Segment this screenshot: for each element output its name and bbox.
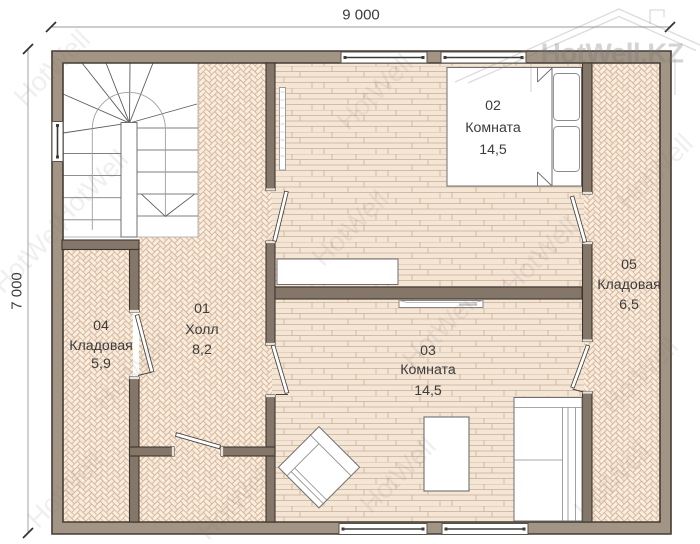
svg-text:Комната: Комната [465, 120, 521, 136]
svg-text:05: 05 [621, 257, 637, 273]
svg-text:Кладовая: Кладовая [597, 277, 661, 293]
svg-text:Кладовая: Кладовая [69, 338, 133, 354]
svg-text:01: 01 [194, 301, 210, 317]
svg-text:14,5: 14,5 [414, 383, 442, 399]
svg-text:8,2: 8,2 [192, 342, 212, 358]
svg-text:HotWell.KZ: HotWell.KZ [541, 38, 684, 69]
svg-text:6,5: 6,5 [619, 297, 639, 313]
svg-text:Холл: Холл [185, 322, 218, 338]
svg-text:04: 04 [93, 318, 109, 334]
svg-text:02: 02 [485, 98, 501, 114]
svg-text:14,5: 14,5 [479, 142, 507, 158]
svg-text:5,9: 5,9 [91, 356, 111, 372]
svg-text:9 000: 9 000 [342, 7, 380, 24]
